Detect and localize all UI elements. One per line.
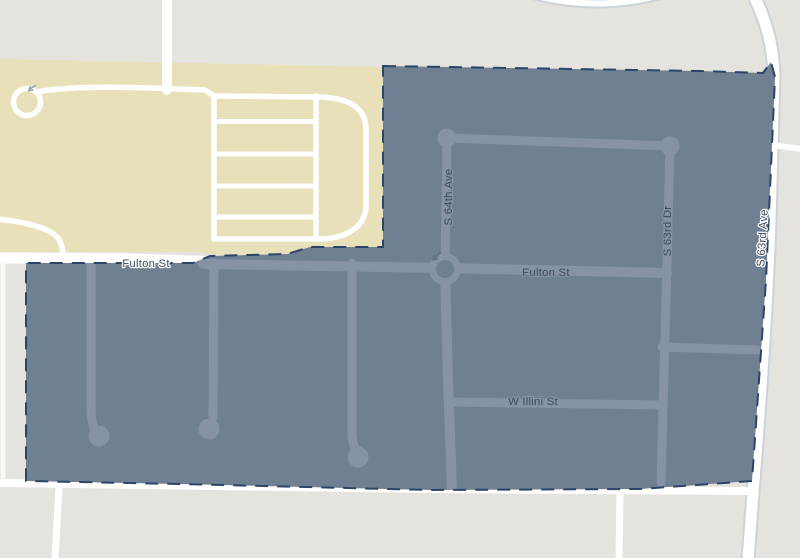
road-bottom-left-vertical [55,487,59,558]
roundabout-island [436,260,454,278]
cul-de-sac-bulb [89,426,110,447]
corner-bulb [438,129,457,148]
street-cul-de-sac-2 [213,263,214,418]
street-label-fulton-st-west: Fulton St [122,258,170,270]
corner-bulb [661,137,680,156]
map-viewport[interactable]: Fulton St Fulton St W Illini St S 64th A… [0,0,800,558]
cul-de-sac-bulb [348,447,369,468]
street-label-w-illini-st: W Illini St [508,396,558,408]
street-east-connector [662,347,757,350]
map-canvas[interactable]: Fulton St Fulton St W Illini St S 64th A… [0,0,800,558]
road-right-stub [779,146,800,149]
road-ladder-rung [214,96,320,97]
street-cul-de-sac-1 [91,263,96,431]
street-label-s-64th-ave: S 64th Ave [443,169,455,226]
cul-de-sac-bulb [199,419,220,440]
street-label-fulton-st-east: Fulton St [522,267,570,279]
street-cul-de-sac-3 [352,263,355,448]
street-label-s-63rd-dr: S 63rd Dr [662,206,674,257]
road-bottom-center-vertical [619,491,620,558]
road-fulton-st-west [0,258,205,262]
